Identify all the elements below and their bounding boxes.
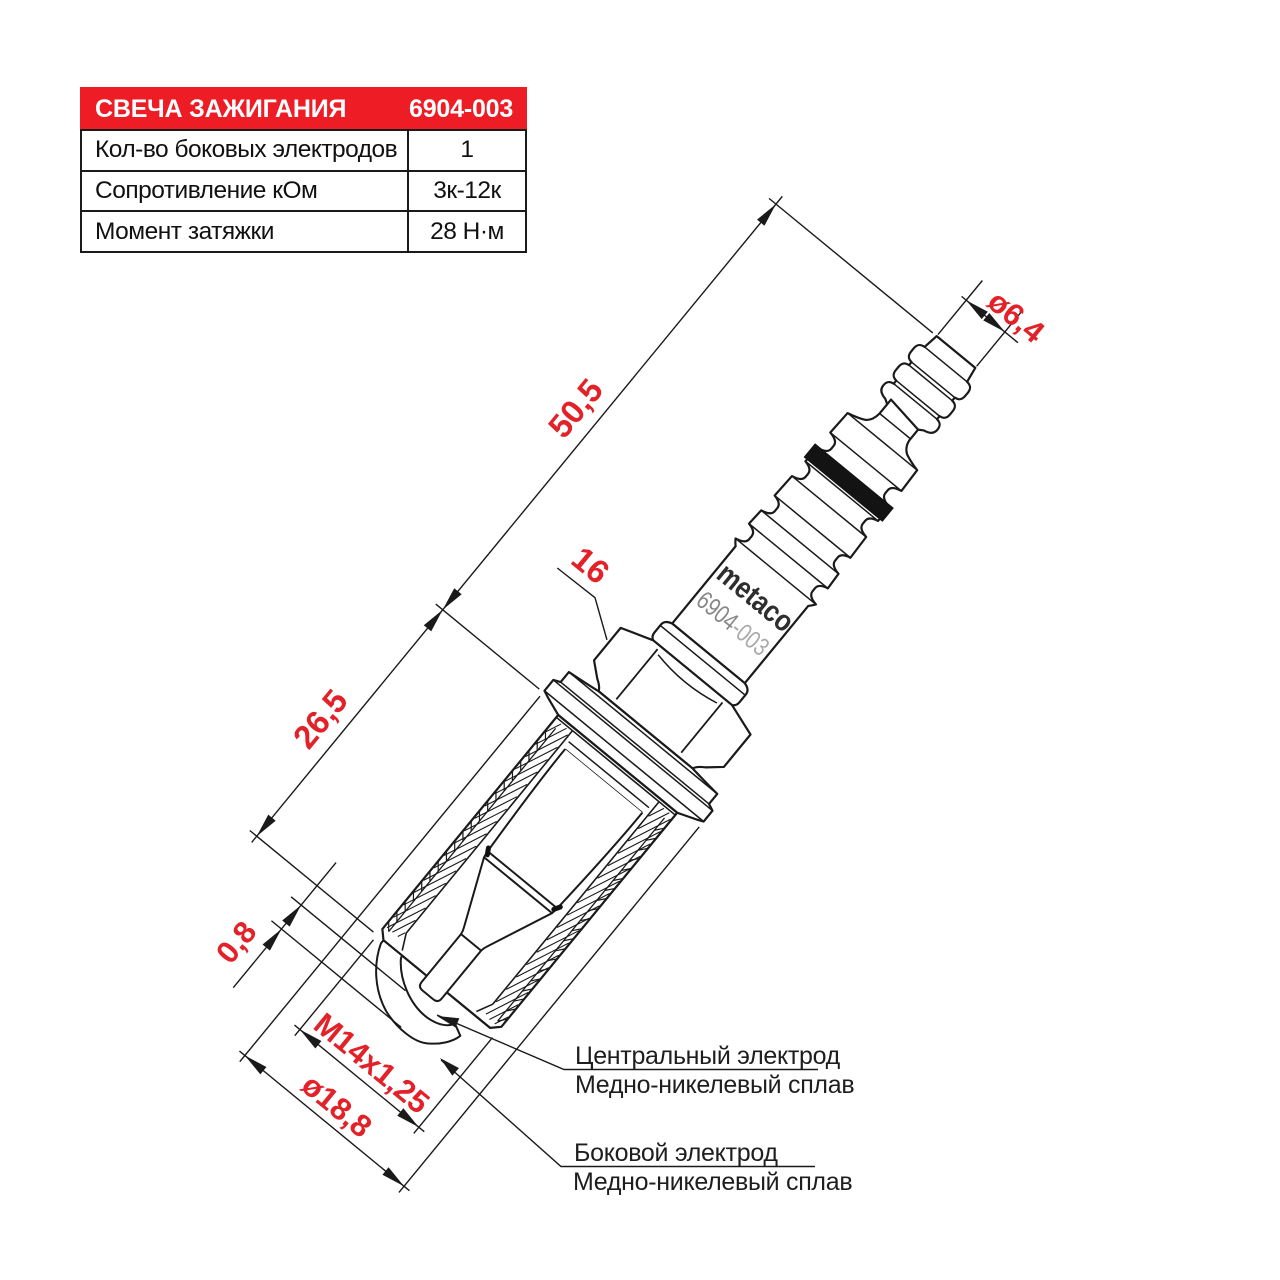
- svg-text:Центральный электрод: Центральный электрод: [575, 1042, 841, 1070]
- svg-text:16: 16: [565, 539, 617, 591]
- svg-text:ø6,4: ø6,4: [981, 283, 1052, 350]
- svg-text:50,5: 50,5: [541, 372, 610, 445]
- svg-text:Медно-никелевый сплав: Медно-никелевый сплав: [575, 1071, 854, 1099]
- svg-text:Боковой электрод: Боковой электрод: [574, 1139, 778, 1167]
- svg-text:Медно-никелевый сплав: Медно-никелевый сплав: [573, 1168, 852, 1196]
- svg-text:26,5: 26,5: [286, 682, 355, 755]
